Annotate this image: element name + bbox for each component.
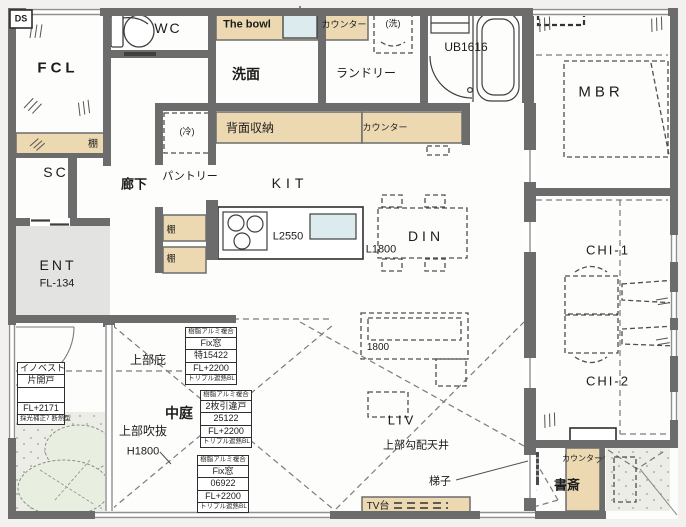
window-tag-line: Fix窓: [197, 465, 249, 478]
label-sofa-width: 1800: [367, 343, 389, 353]
door-tag-line: 採光補正7 断熱型: [17, 414, 65, 425]
door-spec-tag: イノベスト 片開戸 FL+2171 採光補正7 断熱型: [17, 363, 65, 425]
window-tag-line: FL+2200: [185, 362, 237, 375]
window-tag-line: トリプル遮熱BL: [200, 437, 252, 448]
window-tag-line: FL+2200: [197, 490, 249, 503]
window-tag-line: 25122: [200, 412, 252, 425]
window-tag-line: 2枚引違戸: [200, 400, 252, 413]
room-label-chi2: CHI-2: [586, 375, 630, 388]
label-void-height: H1800: [127, 447, 159, 458]
window-tag-line: トリプル遮熱BL: [185, 374, 237, 385]
room-label-study: 書斎: [554, 479, 580, 492]
room-label-hallway: 廊下: [121, 178, 147, 191]
label-shelf-b: 棚: [166, 255, 175, 264]
window-tag-line: 特15422: [185, 349, 237, 362]
label-upper-void: 上部吹抜: [119, 425, 167, 437]
door-tag-line: 片開戸: [17, 374, 65, 387]
room-label-kit: KIT: [272, 176, 309, 190]
room-label-ent: ENT: [40, 258, 77, 272]
room-label-din: DIN: [408, 229, 444, 243]
door-tag-line: イノベスト: [17, 362, 65, 375]
room-label-sc: SC: [43, 165, 68, 179]
floor-plan: DS FCL WC The bowl 洗面 カウンター (洗) ランドリー UB…: [0, 0, 686, 527]
label-back-storage: 背面収納: [226, 122, 274, 134]
room-label-pantry: パントリー: [162, 172, 218, 183]
window-tag-line: Fix窓: [185, 337, 237, 350]
label-washer: (洗): [386, 20, 401, 29]
label-shelf-a: 棚: [166, 226, 175, 235]
label-tv-stand: TV台: [367, 502, 390, 512]
door-tag-spacer: [17, 387, 65, 403]
label-eave: 上部庇: [130, 354, 166, 366]
label-the-bowl: The bowl: [223, 20, 271, 31]
room-label-liv: LIV: [388, 414, 417, 427]
window-tag-line: 06922: [197, 477, 249, 490]
window-spec-tag-2: 樹脂アルミ複合 2枚引違戸 25122 FL+2200 トリプル遮熱BL: [200, 391, 252, 448]
room-label-laundry: ランドリー: [336, 67, 396, 79]
room-label-wc: WC: [154, 21, 181, 35]
label-l2550: L2550: [273, 232, 304, 243]
kitchen-sink-icon: [310, 214, 356, 239]
label-shelf-top: 棚: [88, 140, 98, 150]
window-tag-line: トリプル遮熱BL: [197, 502, 249, 513]
label-fridge: (冷): [180, 128, 195, 137]
label-sloped-ceiling: 上部勾配天井: [383, 441, 449, 452]
window-spec-tag-1: 樹脂アルミ複合 Fix窓 特15422 FL+2200 トリプル遮熱BL: [185, 328, 237, 385]
label-l1800: L1800: [366, 245, 397, 256]
label-ds: DS: [15, 15, 28, 24]
room-label-ub: UB1616: [444, 41, 487, 53]
door-tag-line: FL+2171: [17, 402, 65, 415]
label-counter-3: カウンター: [562, 455, 602, 463]
room-label-senmen: 洗面: [232, 67, 260, 81]
label-counter-1: カウンター: [321, 21, 366, 30]
label-ent-level: FL-134: [40, 279, 75, 290]
room-label-mbr: MBR: [578, 85, 623, 100]
window-tag-line: FL+2200: [200, 425, 252, 438]
toilet-icon: [111, 15, 154, 47]
label-counter-2: カウンター: [362, 124, 407, 133]
room-label-courtyard: 中庭: [165, 406, 193, 420]
label-ladder: 梯子: [429, 477, 451, 488]
window-spec-tag-3: 樹脂アルミ複合 Fix窓 06922 FL+2200 トリプル遮熱BL: [197, 456, 249, 513]
room-label-fcl: FCL: [37, 61, 78, 76]
room-label-chi1: CHI-1: [586, 244, 630, 257]
